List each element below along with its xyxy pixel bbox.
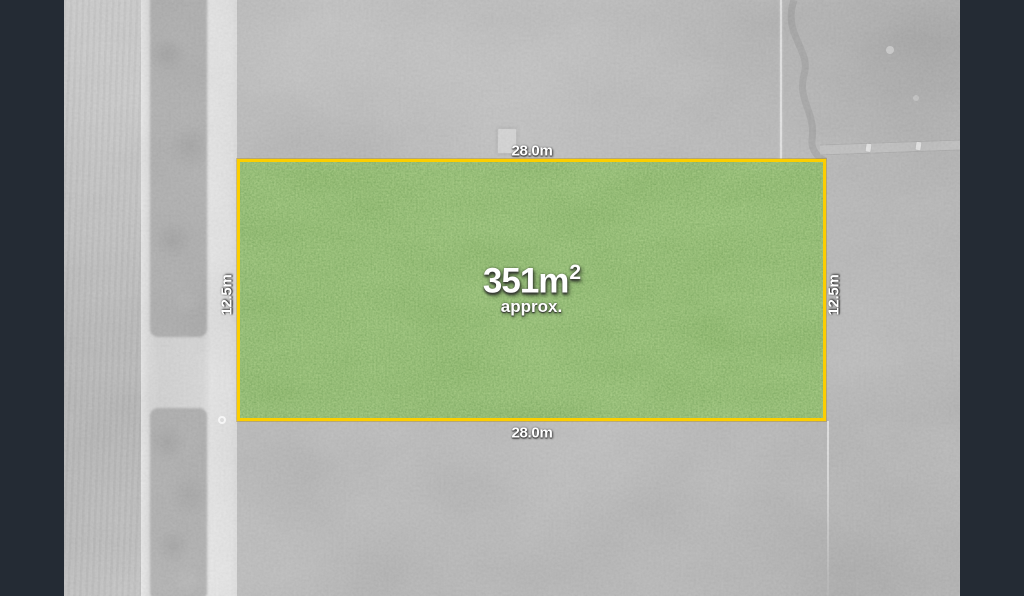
dimension-label-top: 28.0m bbox=[511, 144, 552, 159]
roadside-vegetation-lower bbox=[150, 408, 207, 596]
aerial-photo: 351m2 approx. 28.0m 28.0m 12.5m 12.5m bbox=[64, 0, 960, 596]
track-marker-icon bbox=[865, 143, 871, 152]
land-parcel: 351m2 approx. bbox=[237, 159, 826, 421]
image-frame: 351m2 approx. 28.0m 28.0m 12.5m 12.5m bbox=[0, 0, 1024, 596]
boundary-line-bottom-right bbox=[827, 421, 829, 596]
area-label: 351m2 approx. bbox=[240, 162, 823, 418]
survey-marker bbox=[218, 416, 226, 424]
track-marker-icon bbox=[915, 142, 921, 151]
dimension-label-right: 12.5m bbox=[827, 274, 842, 315]
roadside-vegetation-upper bbox=[150, 0, 207, 337]
area-superscript: 2 bbox=[569, 261, 580, 284]
letterbox-left bbox=[0, 0, 64, 596]
area-qualifier: approx. bbox=[501, 298, 562, 317]
left-field bbox=[64, 0, 142, 596]
letterbox-right bbox=[960, 0, 1024, 596]
dimension-label-bottom: 28.0m bbox=[511, 426, 552, 441]
area-value: 351m2 bbox=[483, 263, 580, 299]
dimension-label-left: 12.5m bbox=[220, 274, 235, 315]
area-number: 351m bbox=[483, 262, 569, 301]
